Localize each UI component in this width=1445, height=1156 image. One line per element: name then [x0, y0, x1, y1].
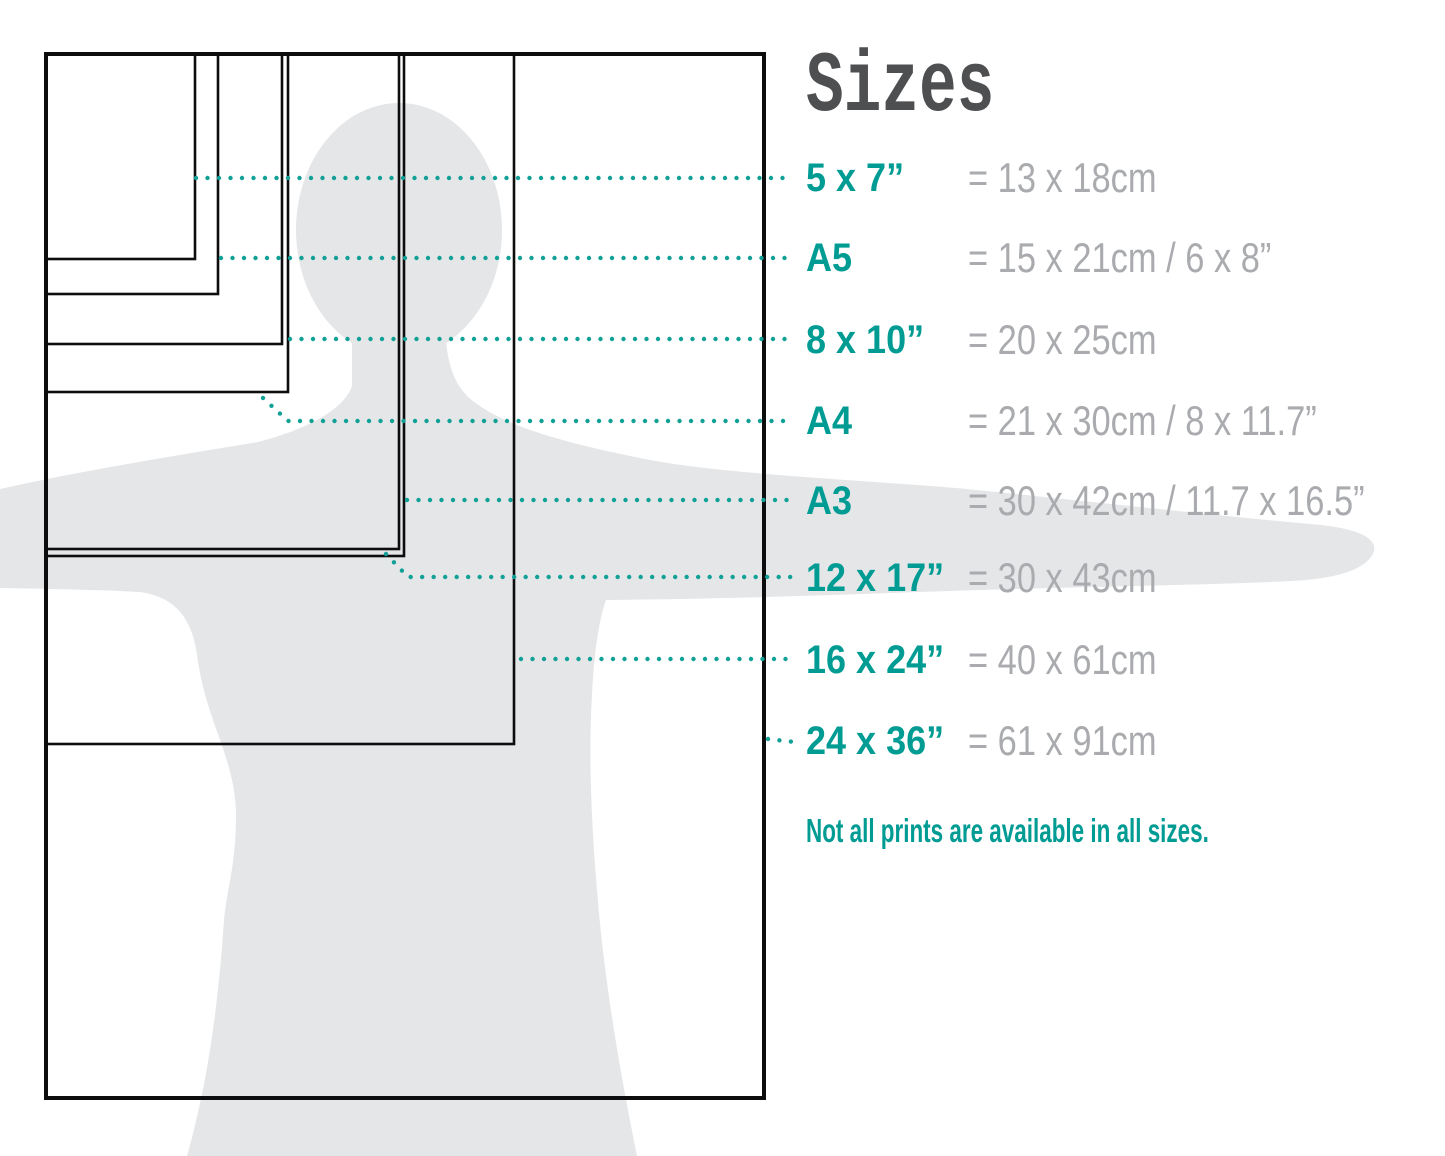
- size-rect-5x7: [46, 54, 195, 259]
- size-rect-a4: [46, 54, 288, 392]
- size-label: A4: [806, 399, 952, 444]
- size-label: A5: [806, 236, 952, 281]
- size-row-a3: A3 = 30 x 42cm / 11.7 x 16.5”: [806, 471, 1445, 531]
- size-row-a5: A5 = 15 x 21cm / 6 x 8”: [806, 228, 1445, 288]
- size-metric-equivalent: = 30 x 42cm / 11.7 x 16.5”: [968, 477, 1365, 525]
- size-metric-equivalent: = 20 x 25cm: [968, 316, 1157, 364]
- size-row-12x17: 12 x 17” = 30 x 43cm: [806, 548, 1445, 608]
- size-label: A3: [806, 479, 952, 524]
- callout-line-24x36: [768, 739, 795, 742]
- size-metric-equivalent: = 40 x 61cm: [968, 636, 1157, 684]
- size-label: 12 x 17”: [806, 556, 952, 601]
- size-rect-8x10: [46, 54, 282, 344]
- size-row-8x10: 8 x 10” = 20 x 25cm: [806, 310, 1445, 370]
- size-metric-equivalent: = 21 x 30cm / 8 x 11.7”: [968, 397, 1317, 445]
- size-row-24x36: 24 x 36” = 61 x 91cm: [806, 711, 1445, 771]
- size-metric-equivalent: = 30 x 43cm: [968, 554, 1157, 602]
- size-row-16x24: 16 x 24” = 40 x 61cm: [806, 630, 1445, 690]
- size-metric-equivalent: = 13 x 18cm: [968, 154, 1157, 202]
- availability-note: Not all prints are available in all size…: [806, 812, 1209, 850]
- size-label: 24 x 36”: [806, 719, 952, 764]
- size-guide-page: Sizes 5 x 7” = 13 x 18cm A5 = 15 x 21cm …: [0, 0, 1445, 1156]
- size-metric-equivalent: = 61 x 91cm: [968, 717, 1157, 765]
- size-row-5x7: 5 x 7” = 13 x 18cm: [806, 148, 1445, 208]
- size-label: 8 x 10”: [806, 318, 952, 363]
- size-label: 5 x 7”: [806, 156, 952, 201]
- size-metric-equivalent: = 15 x 21cm / 6 x 8”: [968, 234, 1271, 282]
- page-title: Sizes: [806, 44, 994, 130]
- size-label: 16 x 24”: [806, 638, 952, 683]
- size-row-a4: A4 = 21 x 30cm / 8 x 11.7”: [806, 391, 1445, 451]
